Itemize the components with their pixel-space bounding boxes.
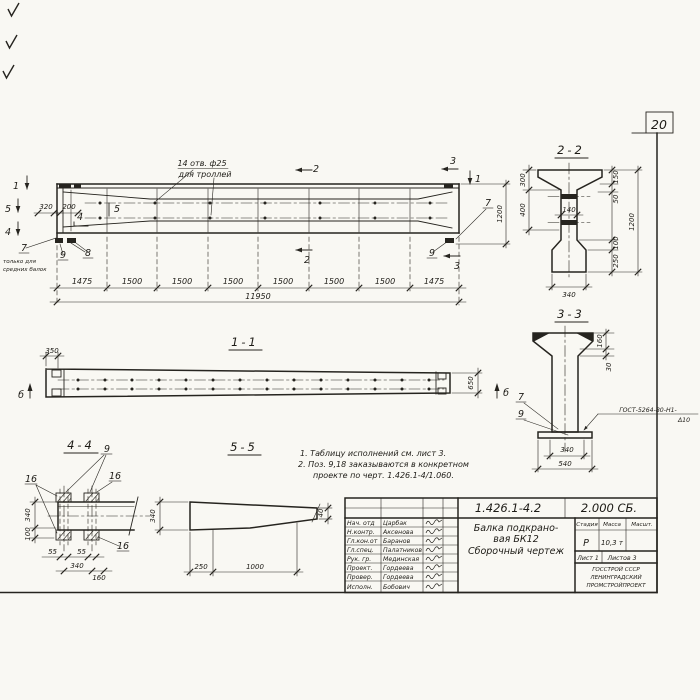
bolt-lines <box>60 489 96 545</box>
cut-mark-5: 5 <box>114 204 120 215</box>
dim-chain-7: 1500 <box>375 277 395 286</box>
column-scale: Масшт. <box>631 522 653 528</box>
dim-30: 30 <box>605 362 613 371</box>
signature-rows: Нач. отд Царбак Н.контр. Аксенова Гл.кон… <box>347 519 442 591</box>
detail-4-4-title: 4-4 <box>67 438 95 452</box>
sig-role-7: Провер. <box>347 574 373 581</box>
dim-chain-3: 1500 <box>172 277 192 286</box>
note-line-3: проекте по черт. 1.426.1-4/1.060. <box>313 471 454 480</box>
callout-7-section33: 7 <box>518 392 524 403</box>
weld-note-line2: Δ10 <box>677 417 690 424</box>
dim-50: 50 <box>612 194 620 203</box>
stiffener-lines <box>107 189 410 232</box>
dim-540: 540 <box>558 460 572 468</box>
splice-plates <box>56 493 99 540</box>
mark-b-right: б <box>503 388 509 399</box>
dim-650: 650 <box>467 376 475 390</box>
callout-16-bottom: 16 <box>117 541 129 552</box>
sig-name-1: Царбак <box>383 519 407 527</box>
drawing-sheet: 20 <box>0 0 700 700</box>
dim-chain-2: 1500 <box>122 277 142 286</box>
org-line1: ГОССТРОЙ СССР <box>592 566 640 573</box>
main-elevation-view: 14 отв. ф25 для троллей 320 200 4 5 1 5 … <box>3 156 510 305</box>
sig-name-4: Палатников <box>383 547 422 554</box>
product-name-line2: вая БК12 <box>493 534 539 545</box>
note-line-2: 2. Поз. 9,18 заказываются в конкретном <box>298 460 469 469</box>
dim-160: 160 <box>596 334 604 348</box>
callout-9-left: 9 <box>60 250 66 261</box>
sig-name-7: Гордеева <box>383 574 414 581</box>
dim-chain-1: 1475 <box>72 277 92 286</box>
detail-5-5-title: 5-5 <box>230 440 258 454</box>
view-1-1: 1-1 350 650 <box>18 335 509 401</box>
dim-100-detail44: 100 <box>24 527 32 541</box>
callout-7-right: 7 <box>485 198 491 209</box>
sig-name-2: Аксенова <box>382 529 414 536</box>
callout-9-section33: 9 <box>518 409 524 420</box>
mark-b-left: б <box>18 390 24 401</box>
section-mark-5: 5 <box>5 204 11 215</box>
sig-role-1: Нач. отд <box>347 520 375 527</box>
only-note-line2: средних балок <box>3 267 47 273</box>
hole-note-line1: 14 отв. ф25 <box>177 159 226 168</box>
view-1-1-title: 1-1 <box>231 335 259 349</box>
dim-340-section22: 340 <box>562 291 576 299</box>
dim-160-detail44: 160 <box>92 574 106 582</box>
callout-16-right: 16 <box>109 471 121 482</box>
dim-40: 40 <box>317 508 325 517</box>
dim-320: 320 <box>39 203 53 211</box>
sig-role-3: Гл.кон.от <box>347 538 378 545</box>
doc-number: 1.426.1-4.2 <box>475 501 541 515</box>
org-line2: ЛЕНИНГРАДСКИЙ <box>589 574 642 581</box>
stage-value: Р <box>583 538 589 549</box>
callout-7-left: 7 <box>21 243 27 254</box>
notes: 1. Таблицу исполнений см. лист 3. 2. Поз… <box>298 449 469 480</box>
section-mark-1-right: 1 <box>475 174 481 185</box>
section-2-2-title: 2-2 <box>557 143 585 157</box>
sig-name-3: Баранов <box>383 538 411 545</box>
callout-16-left: 16 <box>25 474 37 485</box>
dim-400: 400 <box>519 203 527 217</box>
dim-1200-main: 1200 <box>496 205 504 223</box>
dim-chain-6: 1500 <box>324 277 344 286</box>
section-2-2: 2-2 300 400 140 150 50 100 250 <box>519 143 642 299</box>
column-mass: Масса <box>603 522 621 528</box>
title-block: 1.426.1-4.2 2.000 СБ. Балка подкрано- ва… <box>345 498 657 593</box>
org-line3: ПРОМСТРОЙПРОЕКТ <box>587 582 647 589</box>
sig-name-6: Гордеева <box>383 565 414 572</box>
dim-1200-section: 1200 <box>628 213 636 231</box>
detail-4-4: 4-4 9 16 16 16 <box>24 438 150 582</box>
dim-350: 350 <box>45 347 59 355</box>
sig-name-5: Мединская <box>383 556 419 563</box>
dim-250-detail55: 250 <box>194 563 208 571</box>
page-number: 20 <box>651 117 667 132</box>
dim-340-section33: 340 <box>560 446 574 454</box>
dim-chain-4: 1500 <box>223 277 243 286</box>
dim-total: 11950 <box>245 292 270 301</box>
section-mark-1-left: 1 <box>13 181 19 192</box>
section-3-3-title: 3-3 <box>557 307 585 321</box>
sig-role-8: Исполн. <box>347 584 373 591</box>
dim-340-bottom: 340 <box>70 562 84 570</box>
sig-role-2: Н.контр. <box>347 529 375 536</box>
sig-role-5: Рук. гр. <box>347 556 371 563</box>
sig-name-8: Бобович <box>383 583 410 591</box>
dim-250: 250 <box>612 254 620 268</box>
column-stage: Стадия <box>576 522 598 528</box>
sig-role-6: Проект. <box>347 565 373 572</box>
product-name-line1: Балка подкрано- <box>474 523 559 534</box>
dim-55-b: 55 <box>77 548 86 556</box>
dim-300: 300 <box>519 173 527 187</box>
callout-9-detail44: 9 <box>104 444 110 455</box>
product-name-line3: Сборочный чертеж <box>468 546 565 557</box>
dim-55-a: 55 <box>48 548 57 556</box>
page-number-box: 20 <box>646 112 673 133</box>
sheet-number: Лист 1 <box>576 555 599 562</box>
troll-holes <box>99 202 432 220</box>
callout-8: 8 <box>85 248 91 259</box>
hole-note-line2: для троллей <box>178 170 232 179</box>
dim-1000: 1000 <box>246 563 264 571</box>
section-3-3: 3-3 160 30 7 9 ГОСТ-5264-80-Н1- Δ10 340 <box>516 307 698 472</box>
mass-value: 10,3 т <box>601 539 624 547</box>
dim-chain-8: 1475 <box>424 277 444 286</box>
sig-role-4: Гл.спец. <box>347 547 374 554</box>
dim-200: 200 <box>62 203 76 211</box>
section-mark-4: 4 <box>5 227 11 238</box>
dim-100: 100 <box>612 236 620 250</box>
sheets-total: Листов 3 <box>606 555 636 562</box>
note-line-1: 1. Таблицу исполнений см. лист 3. <box>300 449 446 458</box>
only-note-line1: только для <box>3 259 37 265</box>
doc-code: 2.000 СБ. <box>581 501 637 515</box>
cut-mark-4: 4 <box>77 212 83 223</box>
sheet-border <box>0 133 657 593</box>
dim-140: 140 <box>562 206 576 214</box>
dim-chain-5: 1500 <box>273 277 293 286</box>
dim-340-left: 340 <box>24 508 32 522</box>
section-mark-2-top: 2 <box>313 164 319 175</box>
section-mark-3-top: 3 <box>450 156 456 167</box>
corner-marks <box>3 3 19 78</box>
dim-340-detail55: 340 <box>149 509 157 523</box>
callout-9-right: 9 <box>429 248 435 259</box>
weld-note-line1: ГОСТ-5264-80-Н1- <box>619 407 677 414</box>
dim-150: 150 <box>612 170 620 184</box>
